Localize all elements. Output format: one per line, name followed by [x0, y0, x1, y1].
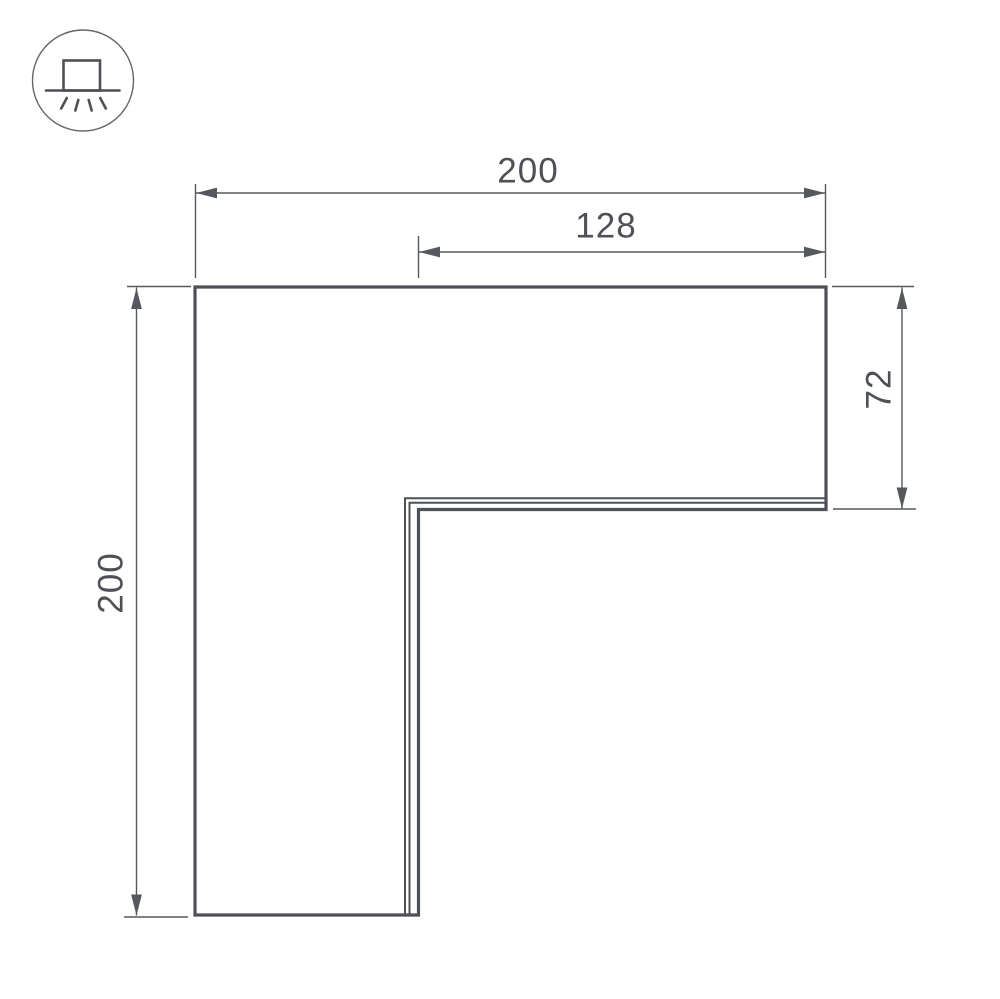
arrowhead-right-icon — [804, 188, 825, 199]
dim-label-left-height: 200 — [94, 552, 129, 613]
fixture-box-icon — [64, 61, 101, 91]
light-ray-icon — [89, 100, 92, 111]
arrowhead-right-icon — [804, 247, 825, 258]
dim-label-top-width: 200 — [497, 154, 558, 189]
technical-drawing — [0, 0, 1000, 999]
surface-mount-icon — [33, 30, 134, 131]
dim-top-width — [196, 184, 826, 278]
arrowhead-up-icon — [131, 288, 142, 309]
profile-seam-line-inner — [410, 503, 827, 915]
light-ray-icon — [100, 98, 106, 109]
light-ray-icon — [75, 100, 78, 111]
arrowhead-down-icon — [897, 488, 908, 509]
dim-label-top-inner-width: 128 — [575, 209, 636, 244]
dim-label-right-arm-height: 72 — [862, 369, 897, 410]
arrowhead-left-icon — [196, 188, 217, 199]
drawing-canvas: 200 128 200 72 — [0, 0, 1000, 999]
arrowhead-up-icon — [897, 288, 908, 309]
icon-circle — [33, 30, 134, 131]
profile-seam-line-outer — [405, 498, 826, 915]
light-ray-icon — [61, 98, 67, 109]
arrowhead-down-icon — [131, 895, 142, 916]
arrowhead-left-icon — [419, 247, 440, 258]
dim-left-height — [124, 287, 191, 918]
profile-outline — [195, 287, 826, 915]
